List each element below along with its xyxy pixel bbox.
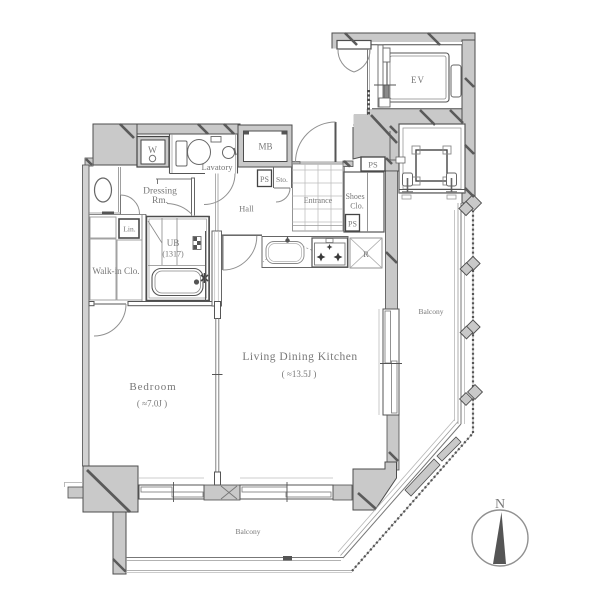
svg-text:PS: PS <box>260 175 269 184</box>
svg-text:Entrance: Entrance <box>304 196 333 205</box>
svg-text:PS: PS <box>348 220 357 229</box>
svg-text:R: R <box>363 249 369 259</box>
svg-text:Clo.: Clo. <box>350 202 364 211</box>
svg-text:Hall: Hall <box>239 204 254 214</box>
svg-text:N: N <box>495 497 505 512</box>
svg-text:UB: UB <box>167 238 180 248</box>
svg-text:(1317): (1317) <box>162 250 184 259</box>
svg-text:W: W <box>148 146 157 156</box>
svg-text:Lavatory: Lavatory <box>201 162 233 172</box>
svg-text:MB: MB <box>258 142 272 152</box>
svg-text:Dressing: Dressing <box>143 187 177 197</box>
svg-text:EV: EV <box>411 75 425 85</box>
svg-text:( ≈7.0J ): ( ≈7.0J ) <box>137 399 167 409</box>
svg-text:PS: PS <box>368 160 378 170</box>
svg-text:Walk-in Clo.: Walk-in Clo. <box>92 266 139 276</box>
svg-text:( ≈13.5J ): ( ≈13.5J ) <box>282 369 317 379</box>
svg-text:Balcony: Balcony <box>419 307 444 316</box>
svg-text:Sto.: Sto. <box>276 175 288 184</box>
svg-text:Lin.: Lin. <box>123 225 135 234</box>
svg-text:Rm.: Rm. <box>152 196 168 206</box>
svg-text:Bedroom: Bedroom <box>129 381 176 393</box>
svg-text:Living Dining Kitchen: Living Dining Kitchen <box>242 351 357 363</box>
svg-text:Shoes: Shoes <box>345 192 364 201</box>
svg-text:Balcony: Balcony <box>236 527 261 536</box>
